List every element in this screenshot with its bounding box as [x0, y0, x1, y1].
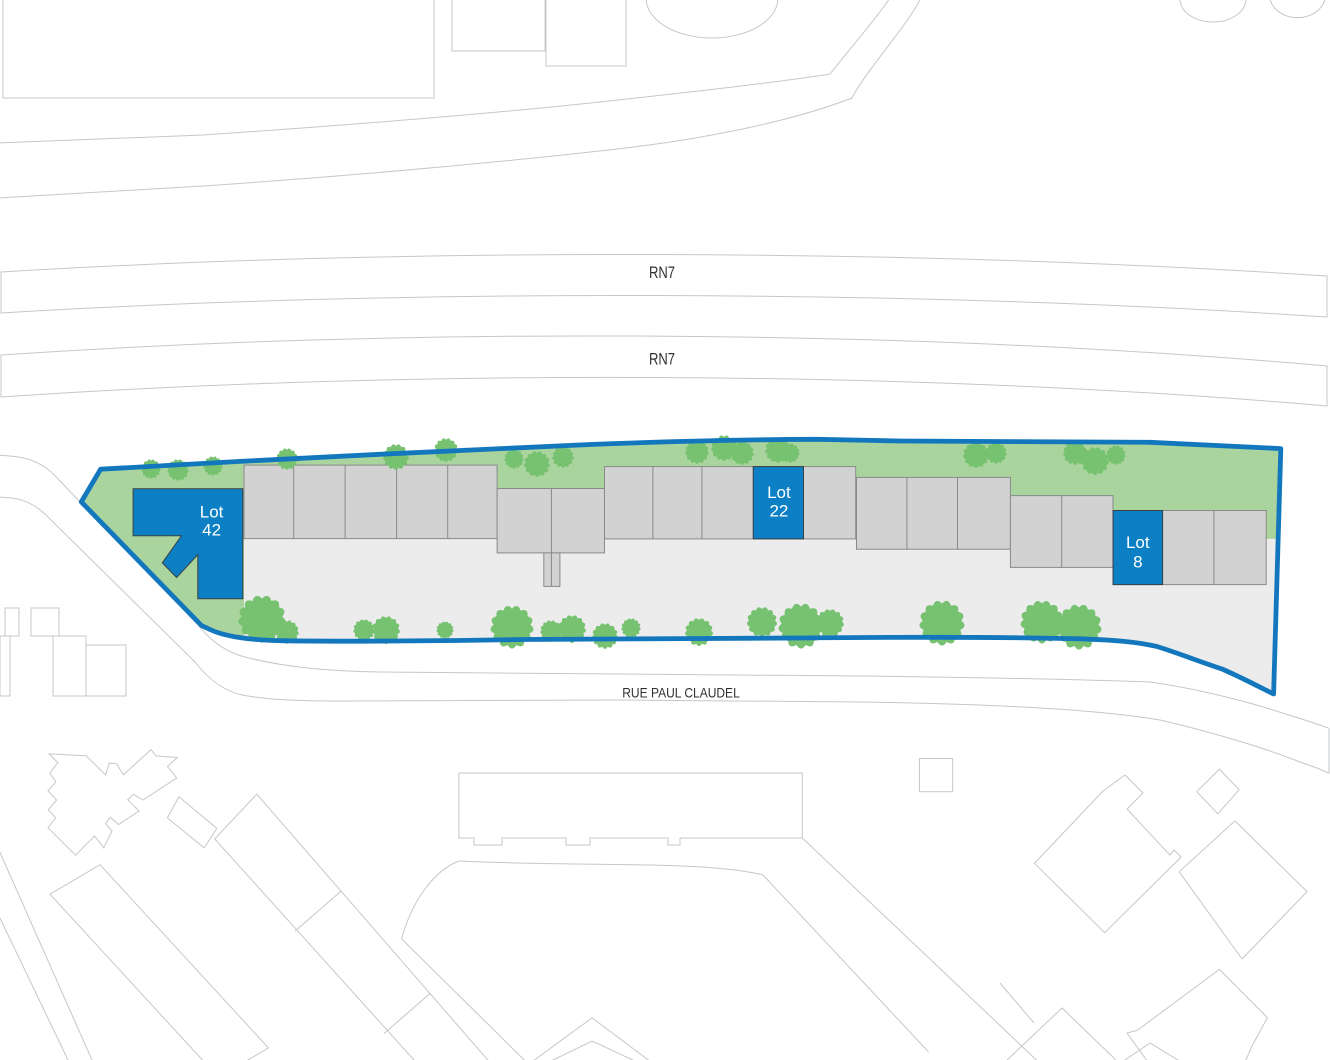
svg-text:Lot: Lot	[767, 483, 791, 502]
svg-text:Lot: Lot	[1126, 533, 1150, 552]
svg-text:RN7: RN7	[649, 263, 675, 282]
svg-text:42: 42	[202, 521, 221, 540]
svg-text:RN7: RN7	[649, 350, 675, 369]
svg-text:RUE PAUL CLAUDEL: RUE PAUL CLAUDEL	[622, 685, 740, 701]
svg-text:8: 8	[1133, 553, 1142, 572]
svg-text:Lot: Lot	[200, 503, 224, 522]
svg-text:22: 22	[769, 502, 788, 521]
